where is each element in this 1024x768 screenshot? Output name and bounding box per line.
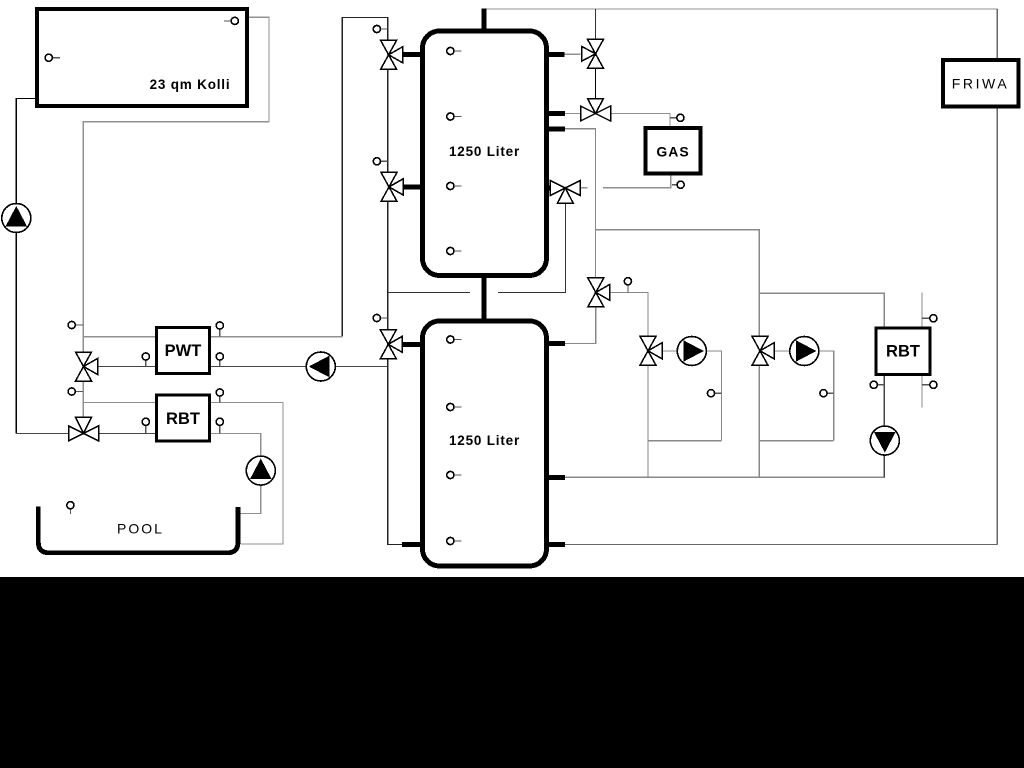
svg-text:GAS: GAS [656,144,689,160]
svg-text:RBT: RBT [166,410,200,428]
svg-text:23 qm Kolli: 23 qm Kolli [150,77,231,92]
svg-text:1250 Liter: 1250 Liter [449,433,520,448]
svg-text:PWT: PWT [165,342,202,360]
svg-text:FRIWA: FRIWA [952,76,1010,92]
svg-text:1250 Liter: 1250 Liter [449,144,520,159]
svg-text:POOL: POOL [117,521,164,537]
svg-text:RBT: RBT [886,343,920,361]
